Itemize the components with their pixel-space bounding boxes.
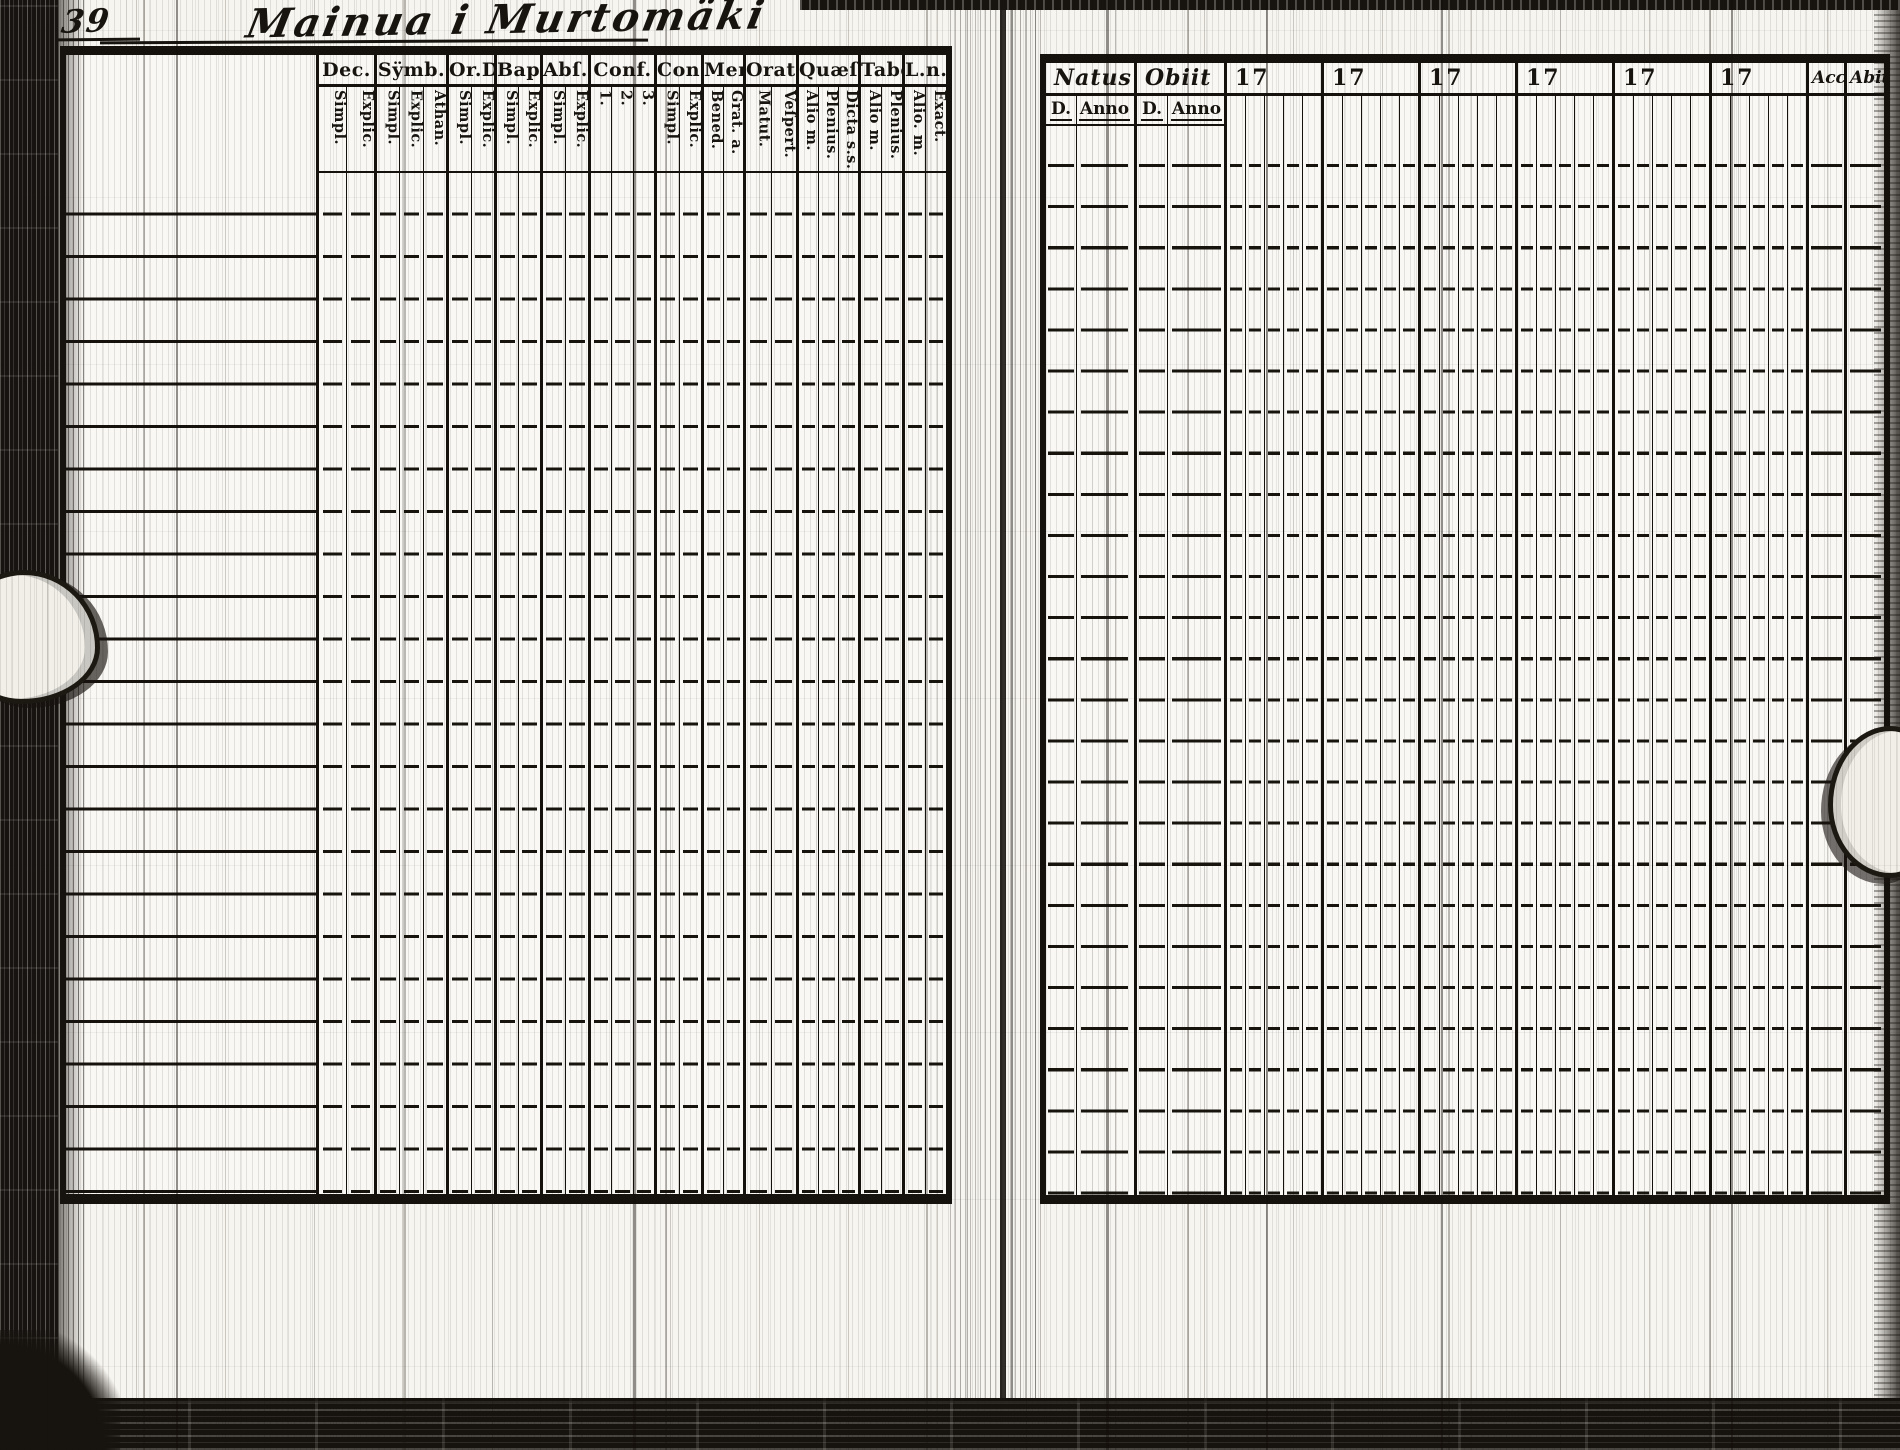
name-column bbox=[66, 55, 316, 1194]
subcolumn: Simpl. bbox=[543, 87, 565, 1194]
subcolumn: Simpl. bbox=[497, 87, 518, 1194]
subcolumn-label: Explic. bbox=[680, 87, 702, 173]
subcolumn: Plenius. bbox=[818, 87, 838, 1194]
year-subgrid bbox=[1227, 96, 1321, 1195]
book-bottom-edge bbox=[0, 1398, 1900, 1450]
subcolumn: Matut. bbox=[746, 87, 771, 1194]
subcolumn-rows bbox=[634, 173, 654, 1194]
left-register-table: Dec.Simpl.Explic.Sÿmb.Simpl.Explic.Athan… bbox=[60, 46, 952, 1204]
row-strip bbox=[1245, 96, 1264, 1195]
subcolumn-rows bbox=[861, 173, 881, 1194]
column-group-conf: Conf.1.2.3. bbox=[588, 55, 654, 1194]
row-tick-marks bbox=[929, 173, 943, 1194]
row-strip bbox=[1712, 96, 1730, 1195]
column-group-bapt: Bapt.Simpl.Explic. bbox=[494, 55, 540, 1194]
year-column-6: 17 bbox=[1709, 63, 1806, 1195]
subcolumn: Alio. m. bbox=[905, 87, 925, 1194]
subheader-label: D. bbox=[1141, 99, 1163, 121]
column-subgrid: Simpl.Explic. bbox=[319, 87, 374, 1194]
row-strip bbox=[1518, 96, 1536, 1195]
row-strip bbox=[1324, 96, 1342, 1195]
year-header: 17 bbox=[1227, 63, 1321, 96]
year-column-4: 17 bbox=[1515, 63, 1612, 1195]
column-subgrid: Alio m.Plenius.Dicta s.s. bbox=[799, 87, 858, 1194]
subcolumn-rows bbox=[746, 173, 771, 1194]
year-column-1: 17 bbox=[1224, 63, 1321, 1195]
subcolumn: Explic. bbox=[399, 87, 422, 1194]
row-strip bbox=[1593, 96, 1612, 1195]
subcolumn-rows bbox=[839, 173, 858, 1194]
subcolumn-label: Athan. bbox=[424, 87, 446, 173]
row-tick-marks bbox=[1306, 126, 1318, 1195]
column-group-ord: Or.DSimpl.Explic. bbox=[446, 55, 494, 1194]
year-header: 17 bbox=[1518, 63, 1612, 96]
row-tick-marks bbox=[351, 173, 370, 1194]
row-tick-marks bbox=[380, 173, 396, 1194]
row-strip bbox=[1749, 96, 1768, 1195]
row-strip bbox=[1690, 96, 1709, 1195]
year-header: 17 bbox=[1615, 63, 1709, 96]
row-tick-marks bbox=[1500, 126, 1512, 1195]
column-group-cond: Con.DSimpl.Explic. bbox=[654, 55, 701, 1194]
scanned-register-spread: 39 Mainua i Murtomäki Dec.Simpl.Explic.S… bbox=[0, 0, 1900, 1450]
row-strip bbox=[1787, 96, 1806, 1195]
subcolumn-label: Simpl. bbox=[657, 87, 679, 173]
column-rows bbox=[1137, 126, 1224, 1195]
subcolumn: 1. bbox=[591, 87, 611, 1194]
bottom-left-shadow bbox=[0, 1330, 120, 1450]
row-tick-marks bbox=[1424, 126, 1436, 1195]
subcolumn-rows bbox=[497, 173, 518, 1194]
year-subgrid bbox=[1421, 96, 1515, 1195]
row-tick-marks bbox=[1287, 126, 1299, 1195]
subcolumn-label: Explic. bbox=[347, 87, 374, 173]
subcolumn: Exact. bbox=[925, 87, 946, 1194]
subcolumn-rows bbox=[591, 173, 611, 1194]
column-group-ln: L.n.Alio. m.Exact. bbox=[902, 55, 946, 1194]
row-tick-marks bbox=[660, 173, 675, 1194]
row-tick-marks bbox=[1734, 126, 1746, 1195]
row-tick-marks bbox=[822, 173, 835, 1194]
row-tick-marks bbox=[1656, 126, 1668, 1195]
column-group-natus: NatusD.Anno bbox=[1046, 63, 1134, 1195]
row-tick-marks bbox=[452, 173, 467, 1194]
year-subgrid bbox=[1615, 96, 1709, 1195]
column-header: Acceſ bbox=[1809, 63, 1844, 96]
column-group-orat: Orat.Matut.Veſpert. bbox=[743, 55, 796, 1194]
subcolumn: Dicta s.s. bbox=[838, 87, 858, 1194]
column-header: Orat. bbox=[746, 55, 796, 87]
row-tick-marks bbox=[323, 173, 342, 1194]
row-tick-marks bbox=[1597, 126, 1609, 1195]
right-register-table: NatusD.AnnoObiitD.Anno171717171717AcceſA… bbox=[1040, 54, 1890, 1204]
row-tick-marks bbox=[1715, 126, 1727, 1195]
acce-column: Acceſ bbox=[1806, 63, 1844, 1195]
subcolumn-rows bbox=[566, 173, 588, 1194]
row-strip bbox=[1421, 96, 1439, 1195]
row-tick-marks bbox=[1618, 126, 1630, 1195]
year-subgrid bbox=[1518, 96, 1612, 1195]
subcolumn-rows bbox=[347, 173, 374, 1194]
year-header: 17 bbox=[1421, 63, 1515, 96]
row-tick-marks bbox=[1578, 126, 1590, 1195]
row-strip bbox=[1439, 96, 1458, 1195]
row-strip bbox=[1496, 96, 1515, 1195]
row-strip bbox=[1633, 96, 1652, 1195]
row-tick-marks bbox=[1172, 126, 1221, 1195]
subcolumn-rows bbox=[704, 173, 723, 1194]
row-tick-marks bbox=[427, 173, 443, 1194]
subcolumn: Simpl. bbox=[319, 87, 346, 1194]
row-tick-marks bbox=[802, 173, 815, 1194]
row-strip bbox=[1574, 96, 1593, 1195]
subcolumn-label: Explic. bbox=[519, 87, 540, 173]
subcolumn: Explic. bbox=[679, 87, 702, 1194]
row-strip bbox=[1730, 96, 1749, 1195]
row-tick-marks bbox=[1753, 126, 1765, 1195]
subcolumn: Simpl. bbox=[377, 87, 399, 1194]
subcolumn-label: Explic. bbox=[400, 87, 422, 173]
subcolumn-rows bbox=[882, 173, 902, 1194]
column-subgrid: Bened.Grat. a. bbox=[704, 87, 743, 1194]
subheader-cell: Anno bbox=[1167, 96, 1225, 124]
subcolumn-label: Simpl. bbox=[497, 87, 518, 173]
row-tick-marks bbox=[750, 173, 767, 1194]
row-tick-marks bbox=[842, 173, 855, 1194]
row-strip bbox=[1283, 96, 1302, 1195]
subheader-label: Anno bbox=[1171, 99, 1222, 121]
row-strip bbox=[1227, 96, 1245, 1195]
row-strip bbox=[1361, 96, 1380, 1195]
row-strip bbox=[1264, 96, 1283, 1195]
name-column-row-lines bbox=[66, 173, 316, 1194]
subcolumn: Simpl. bbox=[657, 87, 679, 1194]
subcolumn: Alio m. bbox=[861, 87, 881, 1194]
subcolumn-rows bbox=[799, 173, 818, 1194]
subcolumn-rows bbox=[772, 173, 797, 1194]
subcolumn-rows bbox=[400, 173, 422, 1194]
subcolumn-rows bbox=[680, 173, 702, 1194]
subcolumn: Explic. bbox=[565, 87, 588, 1194]
row-strip bbox=[1076, 126, 1132, 1195]
row-tick-marks bbox=[475, 173, 490, 1194]
subcolumn-rows bbox=[424, 173, 446, 1194]
subcolumn: Explic. bbox=[471, 87, 494, 1194]
subcolumn-label: Alio m. bbox=[799, 87, 818, 173]
row-tick-marks bbox=[1772, 126, 1784, 1195]
subcolumn-label: 1. bbox=[591, 87, 611, 173]
subcolumn-label: Simpl. bbox=[377, 87, 399, 173]
row-strip bbox=[1477, 96, 1496, 1195]
book-spine-shadow bbox=[58, 0, 84, 1450]
row-strip bbox=[1399, 96, 1418, 1195]
column-header: Or.D bbox=[449, 55, 494, 87]
subcolumn: Explic. bbox=[518, 87, 540, 1194]
subcolumn-rows bbox=[319, 173, 346, 1194]
row-tick-marks bbox=[727, 173, 740, 1194]
row-tick-marks bbox=[1327, 126, 1339, 1195]
subcolumn-rows bbox=[612, 173, 632, 1194]
row-tick-marks bbox=[1637, 126, 1649, 1195]
row-tick-marks bbox=[1791, 126, 1803, 1195]
column-subgrid: Alio. m.Exact. bbox=[905, 87, 946, 1194]
column-header: Sÿmb. bbox=[377, 55, 446, 87]
column-group-obiit: ObiitD.Anno bbox=[1134, 63, 1224, 1195]
subcolumn-rows bbox=[519, 173, 540, 1194]
subcolumn-rows bbox=[449, 173, 471, 1194]
row-tick-marks bbox=[1811, 126, 1841, 1195]
row-tick-marks bbox=[775, 173, 792, 1194]
subcolumn-label: Simpl. bbox=[543, 87, 565, 173]
column-subgrid: Simpl.Explic. bbox=[449, 87, 494, 1194]
subcolumn-label: 3. bbox=[634, 87, 654, 173]
column-header: Obiit bbox=[1137, 63, 1224, 96]
subcolumn: Grat. a. bbox=[723, 87, 743, 1194]
subcolumn-rows bbox=[377, 173, 399, 1194]
row-strip bbox=[1671, 96, 1690, 1195]
column-subgrid: Simpl.Explic. bbox=[497, 87, 540, 1194]
subcolumn-label: Alio. m. bbox=[905, 87, 925, 173]
subcolumn-rows bbox=[543, 173, 565, 1194]
subcolumn: Alio m. bbox=[799, 87, 818, 1194]
subcolumn-label: Plenius. bbox=[882, 87, 902, 173]
subcolumn: Veſpert. bbox=[771, 87, 797, 1194]
subcolumn-label: Matut. bbox=[746, 87, 771, 173]
subcolumn-rows bbox=[926, 173, 946, 1194]
row-tick-marks bbox=[1675, 126, 1687, 1195]
column-group-men: Menſ.Bened.Grat. a. bbox=[701, 55, 743, 1194]
column-group-smb: Sÿmb.Simpl.Explic.Athan. bbox=[374, 55, 446, 1194]
subcolumn: Simpl. bbox=[449, 87, 471, 1194]
subcolumn-label: Bened. bbox=[704, 87, 723, 173]
subcolumn-label: Veſpert. bbox=[772, 87, 797, 173]
column-subgrid: 1.2.3. bbox=[591, 87, 654, 1194]
subcolumn-label: Plenius. bbox=[819, 87, 838, 173]
subcolumn: Athan. bbox=[423, 87, 446, 1194]
subheader-row: D.Anno bbox=[1137, 96, 1224, 126]
row-tick-marks bbox=[1048, 126, 1074, 1195]
row-strip bbox=[1302, 96, 1321, 1195]
column-subgrid: Simpl.Explic.Athan. bbox=[377, 87, 446, 1194]
year-column-2: 17 bbox=[1321, 63, 1418, 1195]
subcolumn-rows bbox=[657, 173, 679, 1194]
row-strip bbox=[1768, 96, 1787, 1195]
subcolumn-label: Explic. bbox=[566, 87, 588, 173]
subheader-cell: Anno bbox=[1076, 96, 1132, 124]
row-tick-marks bbox=[522, 173, 537, 1194]
column-header: Conf. bbox=[591, 55, 654, 87]
subcolumn: Bened. bbox=[704, 87, 723, 1194]
subheader-row: D.Anno bbox=[1046, 96, 1134, 126]
row-strip bbox=[1167, 126, 1225, 1195]
column-subgrid: Simpl.Explic. bbox=[543, 87, 588, 1194]
row-strip bbox=[1615, 96, 1633, 1195]
row-tick-marks bbox=[1481, 126, 1493, 1195]
row-tick-marks bbox=[1694, 126, 1706, 1195]
column-group-tabel: Tabel.Alio m.Plenius. bbox=[858, 55, 902, 1194]
year-header: 17 bbox=[1324, 63, 1418, 96]
column-header: Tabel. bbox=[861, 55, 902, 87]
column-header: L.n. bbox=[905, 55, 946, 87]
subcolumn-label: 2. bbox=[612, 87, 632, 173]
row-tick-marks bbox=[1443, 126, 1455, 1195]
row-tick-marks bbox=[404, 173, 420, 1194]
row-tick-marks bbox=[569, 173, 584, 1194]
row-tick-marks bbox=[1384, 126, 1396, 1195]
subheader-cell: D. bbox=[1137, 96, 1167, 124]
column-header: Con.D bbox=[657, 55, 701, 87]
row-tick-marks bbox=[1249, 126, 1261, 1195]
column-group-dec: Dec.Simpl.Explic. bbox=[316, 55, 374, 1194]
row-tick-marks bbox=[1403, 126, 1415, 1195]
row-tick-marks bbox=[1365, 126, 1377, 1195]
row-strip bbox=[1342, 96, 1361, 1195]
column-subgrid: Matut.Veſpert. bbox=[746, 87, 796, 1194]
subcolumn-rows bbox=[819, 173, 838, 1194]
row-strip bbox=[1137, 126, 1167, 1195]
subheader-label: Anno bbox=[1079, 99, 1130, 121]
column-header: Abſ. bbox=[543, 55, 588, 87]
subcolumn-rows bbox=[472, 173, 494, 1194]
row-tick-marks bbox=[594, 173, 608, 1194]
subcolumn-rows bbox=[905, 173, 925, 1194]
year-subgrid bbox=[1324, 96, 1418, 1195]
subcolumn-label: Exact. bbox=[926, 87, 946, 173]
row-strip bbox=[1458, 96, 1477, 1195]
subcolumn-label: Simpl. bbox=[319, 87, 346, 173]
row-tick-marks bbox=[500, 173, 515, 1194]
row-tick-marks bbox=[707, 173, 720, 1194]
year-column-5: 17 bbox=[1612, 63, 1709, 1195]
column-subgrid: Alio m.Plenius. bbox=[861, 87, 902, 1194]
column-rows bbox=[1809, 96, 1844, 1195]
row-tick-marks bbox=[1346, 126, 1358, 1195]
row-tick-marks bbox=[1521, 126, 1533, 1195]
column-subgrid: Simpl.Explic. bbox=[657, 87, 701, 1194]
year-header: 17 bbox=[1712, 63, 1806, 96]
subheader-label: D. bbox=[1050, 99, 1072, 121]
row-tick-marks bbox=[683, 173, 698, 1194]
subcolumn-label: Dicta s.s. bbox=[839, 87, 858, 173]
subcolumn: Explic. bbox=[346, 87, 374, 1194]
subcolumn-label: Explic. bbox=[472, 87, 494, 173]
subcolumn-rows bbox=[724, 173, 743, 1194]
row-strip bbox=[1555, 96, 1574, 1195]
column-header: Quæſt. bbox=[799, 55, 858, 87]
row-tick-marks bbox=[546, 173, 561, 1194]
row-tick-marks bbox=[1559, 126, 1571, 1195]
column-group-ab: Abſ.Simpl.Explic. bbox=[540, 55, 588, 1194]
column-header: Natus bbox=[1046, 63, 1134, 96]
year-column-3: 17 bbox=[1418, 63, 1515, 1195]
row-strip bbox=[1380, 96, 1399, 1195]
subcolumn: 3. bbox=[633, 87, 654, 1194]
row-tick-marks bbox=[885, 173, 899, 1194]
row-tick-marks bbox=[1268, 126, 1280, 1195]
subcolumn: 2. bbox=[611, 87, 632, 1194]
subcolumn-label: Grat. a. bbox=[724, 87, 743, 173]
row-tick-marks bbox=[908, 173, 922, 1194]
column-header: Dec. bbox=[319, 55, 374, 87]
column-header: Bapt. bbox=[497, 55, 540, 87]
book-spine-edge bbox=[0, 0, 58, 1450]
subcolumn-label: Alio m. bbox=[861, 87, 881, 173]
row-strip bbox=[1809, 96, 1844, 1195]
row-tick-marks bbox=[1540, 126, 1552, 1195]
page-gutter-fold bbox=[950, 0, 1042, 1450]
row-tick-marks bbox=[615, 173, 629, 1194]
row-tick-marks bbox=[1230, 126, 1242, 1195]
subheader-cell: D. bbox=[1046, 96, 1076, 124]
row-strip bbox=[1652, 96, 1671, 1195]
page-right-edge bbox=[1874, 0, 1900, 1450]
row-tick-marks bbox=[864, 173, 878, 1194]
row-tick-marks bbox=[637, 173, 651, 1194]
row-tick-marks bbox=[1462, 126, 1474, 1195]
column-header: Menſ. bbox=[704, 55, 743, 87]
row-strip bbox=[1536, 96, 1555, 1195]
subcolumn: Plenius. bbox=[881, 87, 902, 1194]
year-subgrid bbox=[1712, 96, 1806, 1195]
column-group-qut: Quæſt.Alio m.Plenius.Dicta s.s. bbox=[796, 55, 858, 1194]
page-top-edge bbox=[800, 0, 1900, 10]
subcolumn-label: Simpl. bbox=[449, 87, 471, 173]
column-rows bbox=[1046, 126, 1134, 1195]
row-tick-marks bbox=[1081, 126, 1128, 1195]
row-strip bbox=[1046, 126, 1076, 1195]
row-tick-marks bbox=[1139, 126, 1165, 1195]
